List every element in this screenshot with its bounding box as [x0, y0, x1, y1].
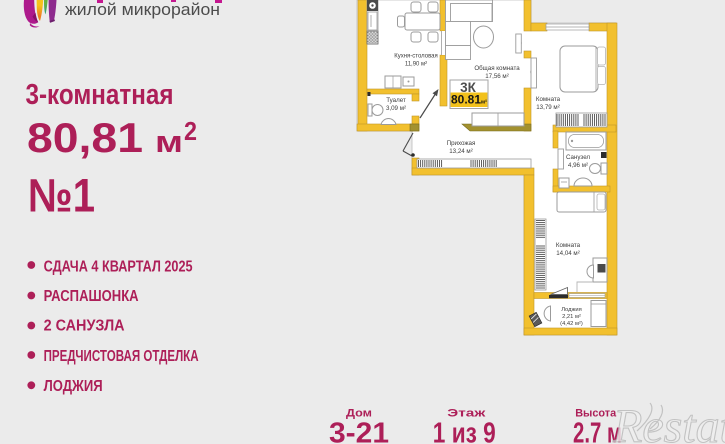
svg-text:14,04 м²: 14,04 м²	[556, 250, 580, 257]
svg-text:Лоджия: Лоджия	[561, 307, 582, 313]
svg-text:м: м	[155, 124, 183, 159]
svg-text:2,21 м²: 2,21 м²	[562, 314, 581, 320]
svg-text:РАСПАШОНКА: РАСПАШОНКА	[44, 288, 139, 305]
svg-text:13,24 м²: 13,24 м²	[449, 148, 473, 155]
svg-text:2 САНУЗЛА: 2 САНУЗЛА	[44, 318, 125, 335]
svg-text:Туалет: Туалет	[386, 97, 406, 104]
svg-text:Общая комната: Общая комната	[474, 65, 520, 72]
svg-text:СДАЧА 4 КВАРТАЛ 2025: СДАЧА 4 КВАРТАЛ 2025	[44, 259, 193, 276]
svg-text:11,90 м²: 11,90 м²	[405, 62, 427, 68]
svg-text:ЛОДЖИЯ: ЛОДЖИЯ	[44, 378, 103, 395]
svg-text:Комната: Комната	[536, 96, 561, 103]
svg-text:Санузел: Санузел	[566, 154, 590, 161]
svg-text:Кухня-столовая: Кухня-столовая	[394, 54, 438, 60]
svg-text:80,81: 80,81	[27, 114, 143, 161]
svg-text:жилой микрорайон: жилой микрорайон	[65, 1, 220, 19]
svg-text:(4,42 м²): (4,42 м²)	[560, 321, 583, 327]
svg-text:3-21: 3-21	[329, 418, 389, 444]
svg-text:Комната: Комната	[556, 242, 581, 249]
svg-text:Restate: Restate	[612, 400, 725, 444]
svg-text:1 из 9: 1 из 9	[433, 418, 496, 444]
svg-text:3,09 м²: 3,09 м²	[386, 105, 406, 112]
svg-text:17,56 м²: 17,56 м²	[485, 73, 509, 80]
svg-text:ПРЕДЧИСТОВАЯ ОТДЕЛКА: ПРЕДЧИСТОВАЯ ОТДЕЛКА	[44, 348, 199, 365]
svg-text:4,96 м²: 4,96 м²	[568, 162, 588, 169]
svg-text:Прихожая: Прихожая	[447, 140, 476, 147]
svg-text:13,79 м²: 13,79 м²	[536, 104, 560, 111]
svg-text:2: 2	[184, 116, 197, 146]
svg-text:№1: №1	[28, 169, 95, 222]
svg-text:3-комнатная: 3-комнатная	[26, 79, 174, 111]
svg-text:80.81: 80.81	[451, 95, 482, 107]
svg-text:м²: м²	[481, 99, 487, 106]
